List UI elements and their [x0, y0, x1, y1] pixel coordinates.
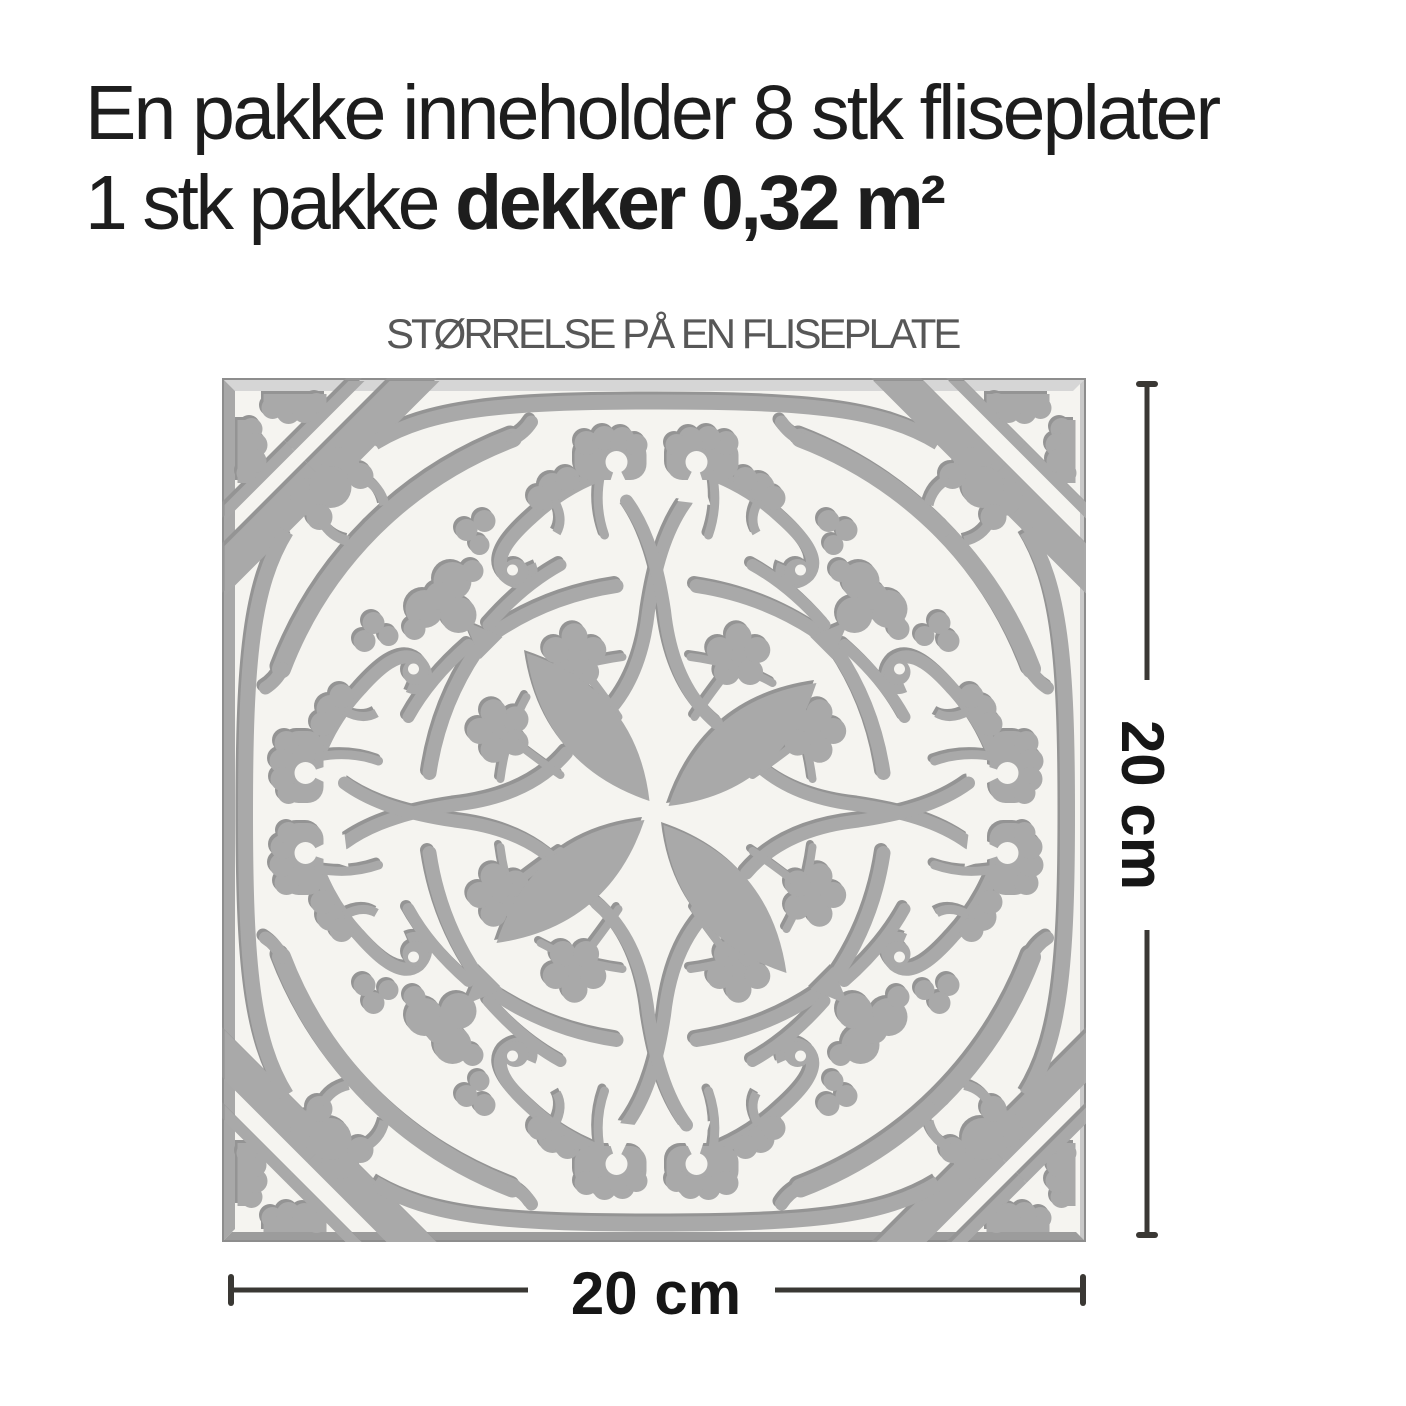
svg-text:20 cm: 20 cm	[571, 1260, 741, 1327]
svg-text:20 cm: 20 cm	[1109, 720, 1176, 890]
